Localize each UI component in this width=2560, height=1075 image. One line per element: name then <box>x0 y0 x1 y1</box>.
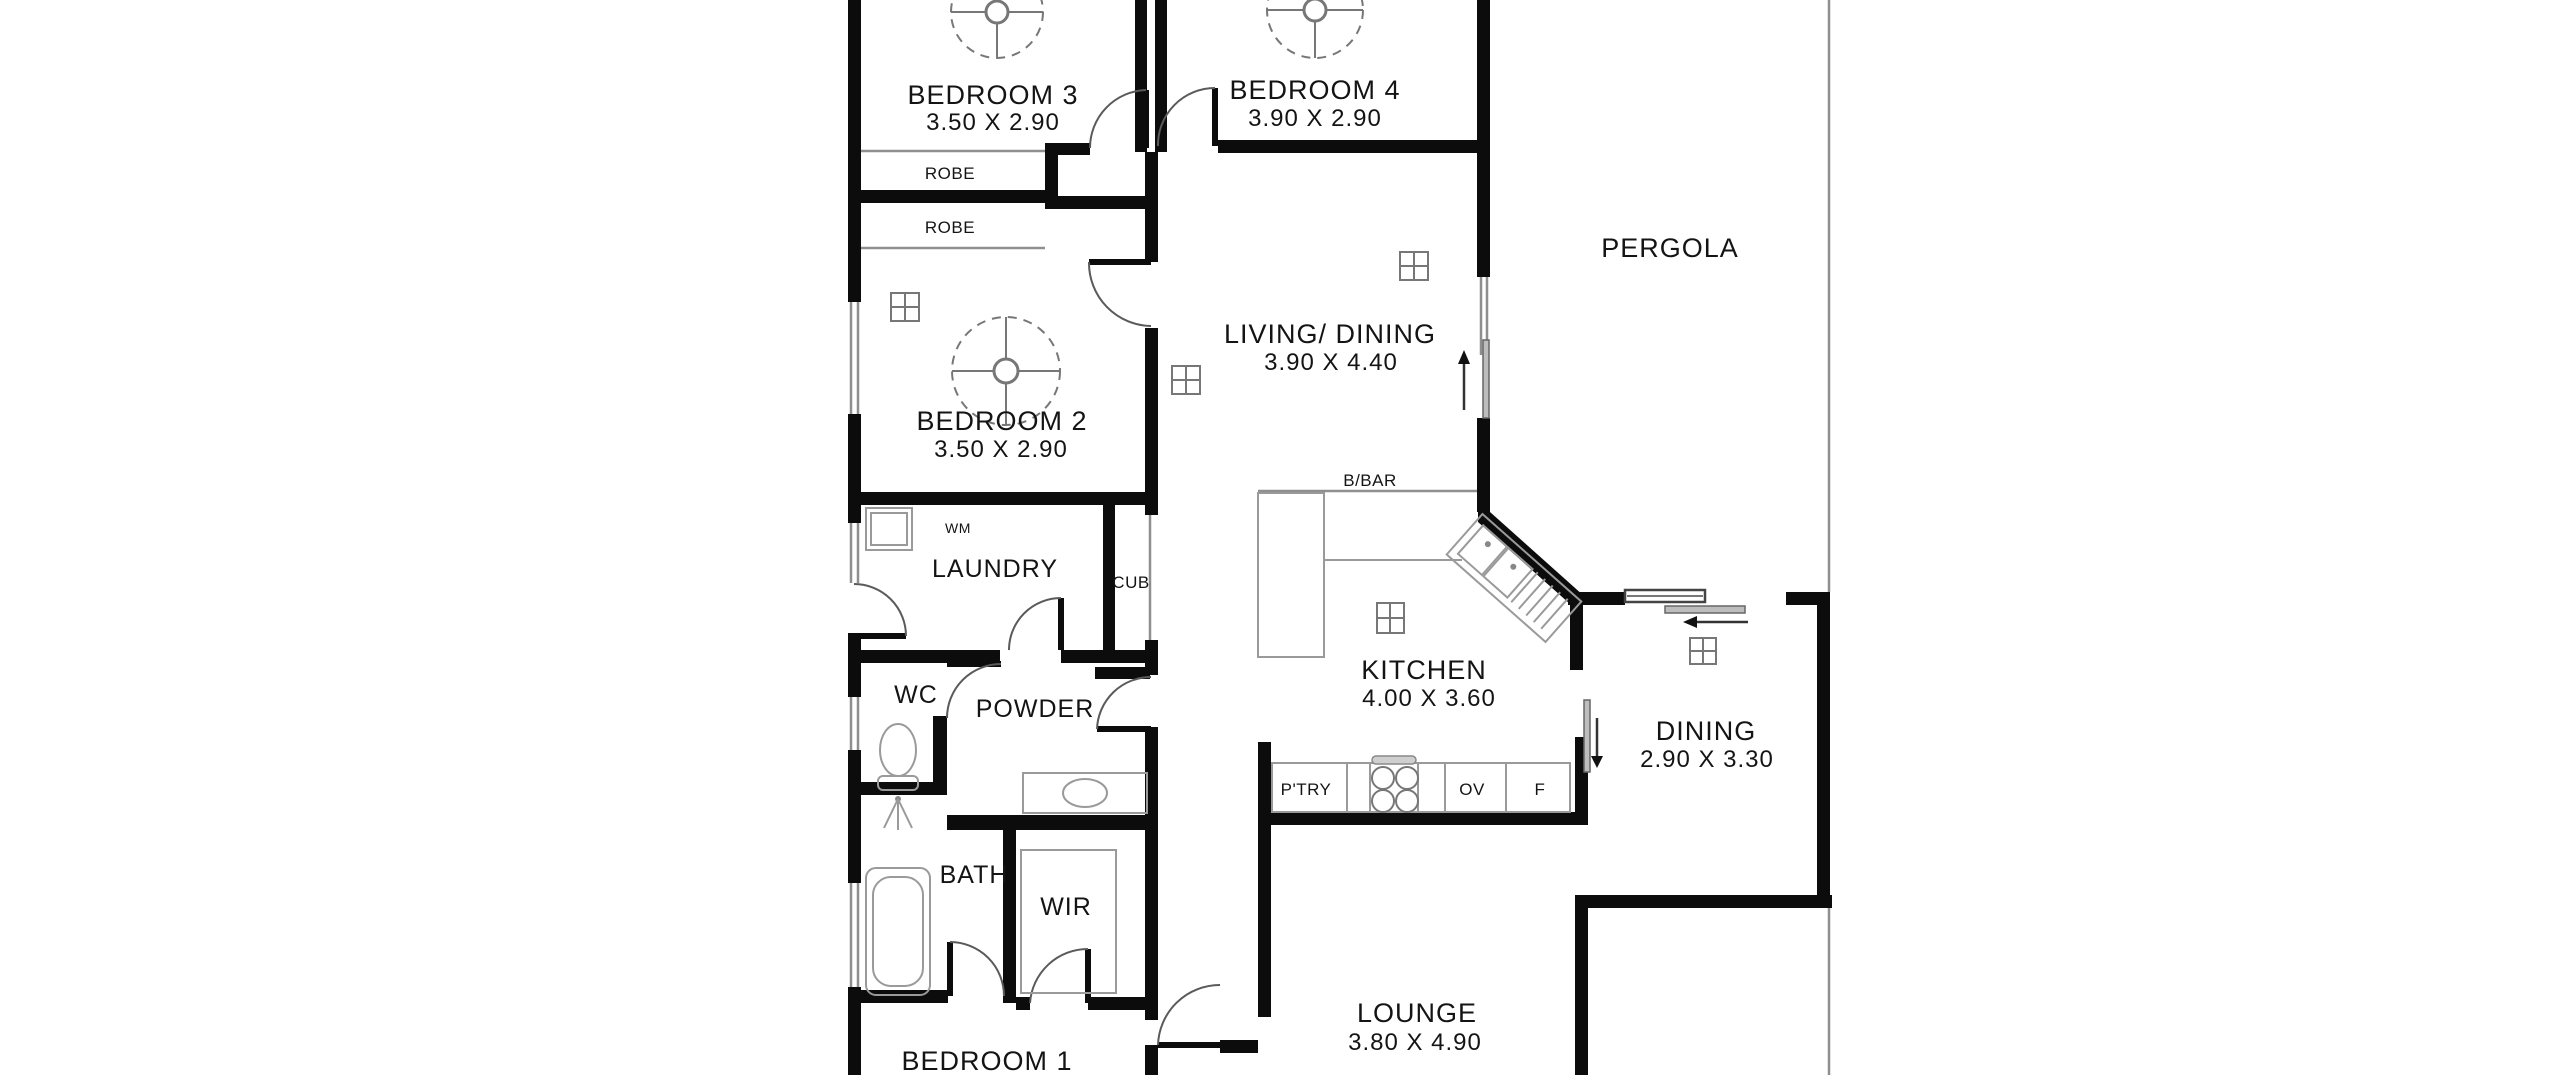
oven-label: OV <box>1459 780 1485 799</box>
lounge-dims: 3.80 X 4.90 <box>1348 1029 1482 1056</box>
window-wc-icon <box>851 697 858 750</box>
bedroom3-dims: 3.50 X 2.90 <box>926 109 1060 136</box>
thin-lines <box>851 0 1829 1075</box>
floor-plan: BEDROOM 3 3.50 X 2.90 BEDROOM 4 3.90 X 2… <box>0 0 2560 1075</box>
bedroom2-door-icon <box>1089 262 1151 326</box>
washing-machine-icon <box>866 508 912 550</box>
bedroom1-door-icon <box>1158 985 1220 1045</box>
grid-symbol-bedroom2-icon <box>891 293 919 321</box>
bedroom2-label: BEDROOM 2 <box>916 406 1087 436</box>
bathtub-icon <box>866 868 930 995</box>
lounge-label: LOUNGE <box>1357 998 1477 1028</box>
robe2-label: ROBE <box>925 218 975 237</box>
labels: BEDROOM 3 3.50 X 2.90 BEDROOM 4 3.90 X 2… <box>894 75 1774 1075</box>
kitchen-dims: 4.00 X 3.60 <box>1362 685 1496 712</box>
dining-dims: 2.90 X 3.30 <box>1640 746 1774 773</box>
wir-label: WIR <box>1040 893 1092 921</box>
bedroom1-label: BEDROOM 1 <box>901 1046 1072 1075</box>
cooktop-icon <box>1372 756 1418 812</box>
wc-label: WC <box>894 681 938 709</box>
powder-label: POWDER <box>976 695 1095 723</box>
living-dining-dims: 3.90 X 4.40 <box>1264 349 1398 376</box>
grid-symbol-living-right-icon <box>1400 252 1428 280</box>
cub-label: CUB <box>1112 573 1149 592</box>
bedroom3-label: BEDROOM 3 <box>907 80 1078 110</box>
floor-plan-page: BEDROOM 3 3.50 X 2.90 BEDROOM 4 3.90 X 2… <box>0 0 2560 1075</box>
fridge-label: F <box>1535 780 1546 799</box>
bath-door-icon <box>950 942 1004 996</box>
toilet-icon <box>878 724 918 790</box>
pergola-label: PERGOLA <box>1601 233 1739 263</box>
ceiling-fan-bedroom4-icon <box>1267 0 1363 58</box>
laundry-label: LAUNDRY <box>932 555 1058 583</box>
kitchen-dining-slider-icon <box>1584 700 1603 772</box>
grid-symbol-dining-icon <box>1690 638 1716 664</box>
kitchen-bench-left <box>1258 493 1324 657</box>
grid-symbol-kitchen-icon <box>1377 603 1404 633</box>
living-slider-icon <box>1458 277 1489 418</box>
powder-door-icon <box>1097 677 1151 729</box>
window-bedroom2-icon <box>851 302 858 414</box>
bath-label: BATH <box>940 861 1009 889</box>
walls <box>848 0 1832 1075</box>
wm-label: WM <box>945 520 971 536</box>
bedroom4-dims: 3.90 X 2.90 <box>1248 105 1382 132</box>
grid-symbol-living-left-icon <box>1172 366 1200 394</box>
bedroom2-dims: 3.50 X 2.90 <box>934 436 1068 463</box>
living-dining-label: LIVING/ DINING <box>1224 319 1436 349</box>
laundry-external-door-icon <box>854 584 906 636</box>
dining-slider-icon <box>1625 590 1748 628</box>
window-laundry-icon <box>851 523 858 583</box>
kitchen-label: KITCHEN <box>1361 655 1487 685</box>
shower-icon <box>884 796 912 830</box>
robe1-label: ROBE <box>925 164 975 183</box>
dining-label: DINING <box>1656 716 1757 746</box>
laundry-internal-door-icon <box>1009 598 1061 650</box>
window-bath-icon <box>851 883 858 987</box>
bbar-label: B/BAR <box>1343 471 1397 490</box>
wir-door-icon <box>1030 949 1088 1003</box>
pantry-label: P'TRY <box>1281 780 1332 799</box>
bedroom4-label: BEDROOM 4 <box>1229 75 1400 105</box>
ceiling-fan-bedroom3-icon <box>951 0 1043 58</box>
wir-shelf-icon <box>1021 850 1116 993</box>
vanity-icon <box>1023 773 1147 813</box>
